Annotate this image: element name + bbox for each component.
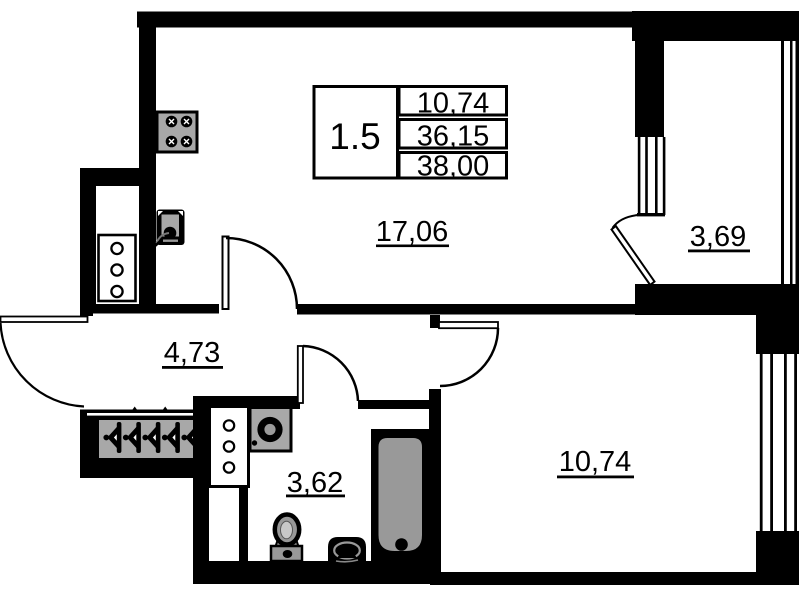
svg-text:36,15: 36,15 — [417, 121, 490, 153]
svg-text:1.5: 1.5 — [329, 116, 380, 157]
svg-text:3,62: 3,62 — [287, 467, 343, 499]
svg-text:10,74: 10,74 — [417, 88, 490, 120]
svg-text:4,73: 4,73 — [164, 337, 220, 369]
svg-text:38,00: 38,00 — [417, 151, 490, 183]
svg-text:17,06: 17,06 — [376, 216, 449, 248]
svg-text:10,74: 10,74 — [559, 446, 632, 478]
svg-text:3,69: 3,69 — [690, 221, 746, 253]
